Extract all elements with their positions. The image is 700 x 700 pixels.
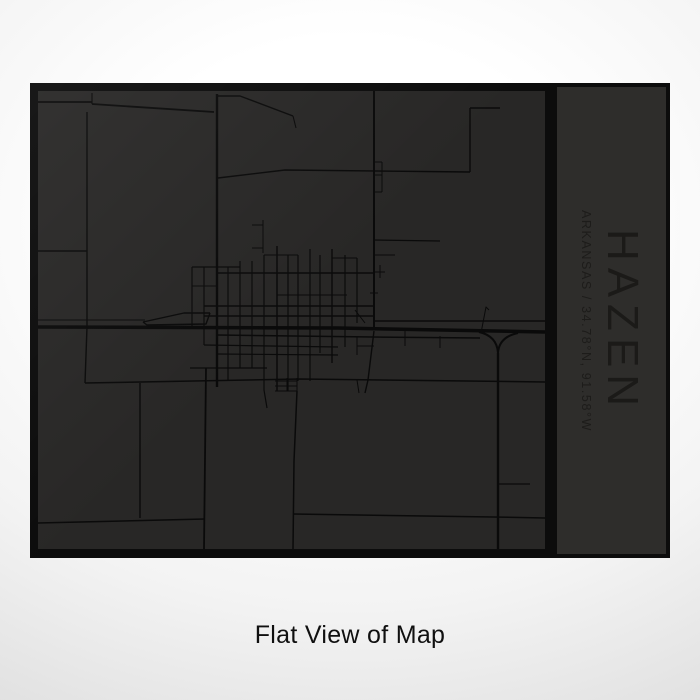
road <box>217 335 480 338</box>
road <box>357 380 359 393</box>
map-area <box>38 91 545 549</box>
road <box>38 519 205 523</box>
map-subtitle: ARKANSAS / 34.78°N, 91.58°W <box>578 91 591 551</box>
road <box>92 104 214 112</box>
road <box>204 345 338 347</box>
road <box>479 332 498 353</box>
road <box>293 116 296 128</box>
road <box>217 354 338 355</box>
product-page: HAZEN ARKANSAS / 34.78°N, 91.58°W Flat V… <box>0 0 700 700</box>
panel-text: HAZEN ARKANSAS / 34.78°N, 91.58°W <box>578 91 644 551</box>
view-caption: Flat View of Map <box>0 621 700 650</box>
title-panel: HAZEN ARKANSAS / 34.78°N, 91.58°W <box>557 87 666 554</box>
road <box>373 240 440 241</box>
road <box>217 96 293 116</box>
road <box>293 391 297 549</box>
road <box>264 255 267 408</box>
road <box>498 333 518 353</box>
road <box>365 331 374 393</box>
road <box>143 313 210 322</box>
map-print: HAZEN ARKANSAS / 34.78°N, 91.58°W <box>30 83 670 558</box>
road <box>85 327 87 383</box>
road <box>85 379 545 383</box>
road <box>204 368 206 549</box>
road <box>38 327 545 332</box>
map-title: HAZEN <box>598 91 644 551</box>
map-roads-svg <box>38 91 545 549</box>
road <box>293 514 545 518</box>
road <box>374 162 382 192</box>
road <box>218 170 470 178</box>
